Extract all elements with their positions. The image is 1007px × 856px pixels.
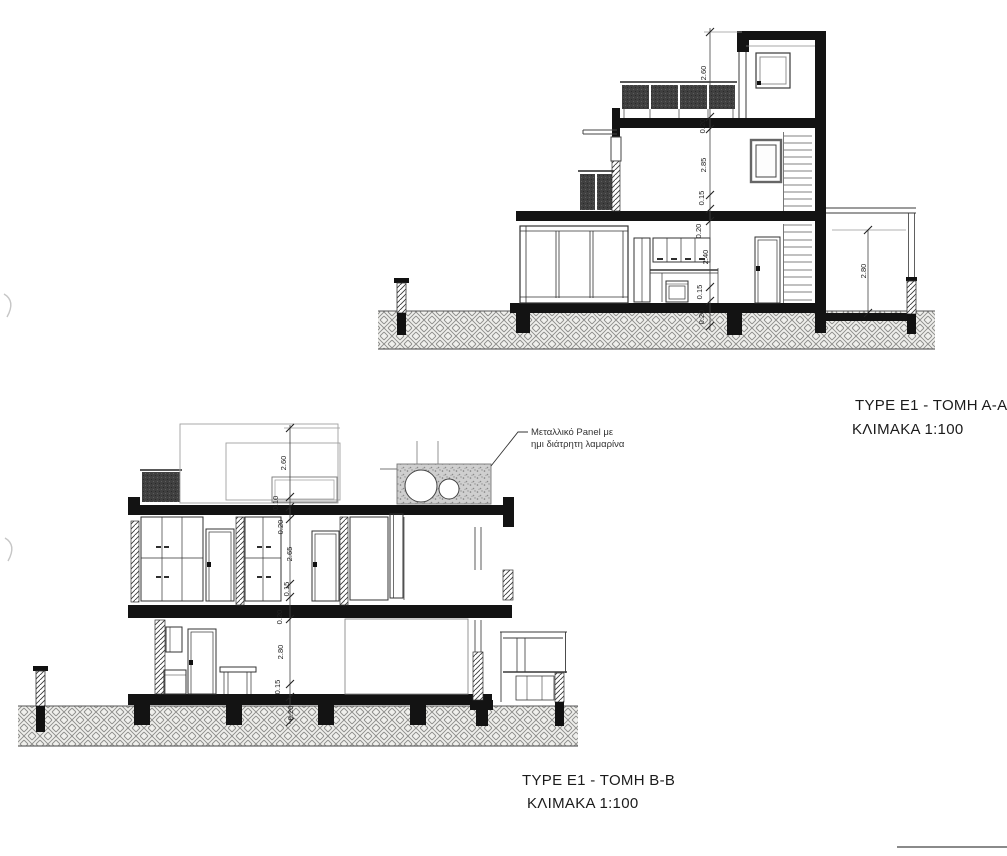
wardrobe-1-handles <box>156 546 169 578</box>
right-wall-window-bb <box>475 527 481 570</box>
section-aa-scale: ΚΛΙΜΑΚΑ 1:100 <box>852 421 963 438</box>
dim-label: 0.20 <box>694 224 703 239</box>
door-1-panel <box>209 532 231 601</box>
annotation-leader <box>491 432 528 466</box>
boiler-tank-small <box>439 479 459 499</box>
int-wall-1 <box>236 517 244 605</box>
sections-canvas: 2.80 2.60 0.20 2.85 0.15 0.20 2.40 0.15 … <box>0 0 1007 856</box>
section-bb-drawing: 2.60 0.10 0.20 2.65 0.15 0.20 2.80 0.15 … <box>18 424 675 812</box>
footing-1 <box>134 705 150 725</box>
section-bb-title: TYPE E1 - TOMH B-B <box>522 772 675 789</box>
window-hinge-mark <box>757 81 761 85</box>
footing-left <box>516 313 530 333</box>
section-bb-scale: ΚΛΙΜΑΚΑ 1:100 <box>527 795 638 812</box>
scan-curl-1 <box>4 294 11 317</box>
roof-rail-panel <box>142 472 180 502</box>
top-floor-aa <box>739 46 815 118</box>
dim-label: 2.80 <box>276 645 285 660</box>
panel-annotation: Μεταλλικό Panel με ημι διάτρητη λαμαρίνα <box>531 427 625 450</box>
side-table <box>220 667 256 694</box>
mid-left-wall-top <box>612 108 620 137</box>
nightstand <box>164 670 186 694</box>
glass-sliding-door <box>520 226 628 303</box>
dim-label: 0.20 <box>276 520 285 535</box>
structure-slabs-aa <box>510 31 916 335</box>
roof-level-bb <box>140 424 528 504</box>
ground-slab-bb <box>128 694 492 705</box>
roof-parapet-left-bb <box>128 497 140 515</box>
dim-label: 0.10 <box>271 496 280 511</box>
title-block-bb: TYPE E1 - TOMH B-B ΚΛΙΜΑΚΑ 1:100 <box>522 772 675 812</box>
boiler-pipes <box>417 441 438 464</box>
pergola-post-upper <box>909 213 915 277</box>
roof-outline-2 <box>226 443 340 500</box>
dim-label: 0.20 <box>275 610 284 625</box>
footing-2 <box>226 705 242 725</box>
section-aa-title: TYPE E1 - TOMH A-A <box>855 397 1007 414</box>
glass-mullions <box>526 226 623 303</box>
dim-label: 2.85 <box>699 158 708 173</box>
boiler-tank-large <box>405 470 437 502</box>
dim-label: 0.20 <box>286 706 295 721</box>
mid-slab <box>516 211 826 221</box>
oven-window <box>669 286 685 299</box>
balcony-railing-aa <box>578 171 614 210</box>
roof-slab <box>737 31 826 40</box>
top-floor-window-inner <box>760 57 786 84</box>
pergola-post-cap <box>906 277 917 281</box>
scan-curl-2 <box>5 538 12 561</box>
dim-label: 0.15 <box>695 285 704 300</box>
title-block-aa: TYPE E1 - TOMH A-A ΚΛΙΜΑΚΑ 1:100 <box>852 397 1007 438</box>
dim-label: 0.15 <box>697 191 706 206</box>
int-wall-2 <box>340 517 348 605</box>
stairs-lower <box>784 225 812 300</box>
roof-parapet-right-bb <box>503 497 514 527</box>
ground-floor-aa <box>520 224 812 303</box>
mid-left-wall-hatch <box>612 161 620 211</box>
ground-hatch-bb <box>18 706 578 746</box>
dim-label: 2.60 <box>699 66 708 81</box>
drawing-sheet: 2.80 2.60 0.20 2.85 0.15 0.20 2.40 0.15 … <box>0 0 1007 856</box>
pergola-post-footing <box>907 314 916 334</box>
dim-label: 2.65 <box>285 547 294 562</box>
wardrobe-2-handles <box>257 546 271 578</box>
door-2-panel <box>315 534 336 601</box>
gf-right-window <box>475 620 481 652</box>
terrace-post <box>517 638 525 672</box>
footing-right <box>470 700 493 710</box>
canopy <box>583 130 617 134</box>
dim-label: 2.40 <box>701 250 710 265</box>
terrace-railing-aa <box>620 82 737 118</box>
footing-mid <box>727 313 742 335</box>
upper-floor-bb <box>131 514 513 605</box>
wall-cabinet <box>166 627 182 652</box>
gf-right-wall-hatch <box>473 652 483 700</box>
section-aa-drawing: 2.80 2.60 0.20 2.85 0.15 0.20 2.40 0.15 … <box>378 28 1007 438</box>
terrace-post-footing <box>555 702 564 726</box>
mid-left-window <box>611 137 621 161</box>
top-floor-left-wall <box>739 52 746 118</box>
dim-label: 0.15 <box>282 582 291 597</box>
pergola-post-hatch <box>907 281 916 314</box>
gf-door-handle <box>189 660 193 665</box>
right-wall-hatch-upper <box>503 570 513 600</box>
footing-3 <box>318 705 334 725</box>
footing-right-stem <box>476 710 488 726</box>
terrace-stool <box>516 676 554 700</box>
annotation-line-2: ημι διάτρητη λαμαρίνα <box>531 439 625 450</box>
wardrobe-1 <box>141 517 203 601</box>
roof-outline-1 <box>180 424 338 503</box>
left-wall-hatch-bb <box>131 521 139 602</box>
mid-slab-bb <box>128 605 512 618</box>
terrace-slab <box>612 118 826 128</box>
ground-door-panel <box>758 240 777 303</box>
roof-parapet-left <box>737 31 749 52</box>
glass-rails <box>520 231 628 297</box>
door-3-bb <box>390 514 403 598</box>
closet-3 <box>350 517 388 600</box>
dim-label: 2.60 <box>279 456 288 471</box>
roof-window-inner <box>275 480 334 499</box>
pergola-beam <box>826 208 916 213</box>
gf-door-panel <box>191 632 213 694</box>
dim-label: 0.20 <box>697 310 706 325</box>
top-floor-window <box>756 53 790 88</box>
stairs-upper <box>784 136 812 206</box>
footing-4 <box>410 705 426 725</box>
right-wall <box>815 31 826 333</box>
dim-label: 0.15 <box>273 680 282 695</box>
ground-slab <box>510 303 826 313</box>
annotation-line-1: Μεταλλικό Panel με <box>531 427 614 438</box>
terrace-beam <box>500 632 567 638</box>
door-2-handle <box>313 562 317 567</box>
door-1-handle <box>207 562 211 567</box>
dim-label: 0.20 <box>698 119 707 134</box>
door-handle-mark <box>756 266 760 271</box>
terrace-ground-slab <box>826 313 916 321</box>
roof-window-outline <box>272 477 337 502</box>
ground-floor-bb <box>155 619 483 700</box>
roof-slab-bb <box>128 505 514 515</box>
mid-window-inner <box>756 145 776 177</box>
background-unit <box>345 619 468 694</box>
terrace-post-hatch <box>555 673 564 702</box>
dim-label-pergola: 2.80 <box>859 264 868 279</box>
